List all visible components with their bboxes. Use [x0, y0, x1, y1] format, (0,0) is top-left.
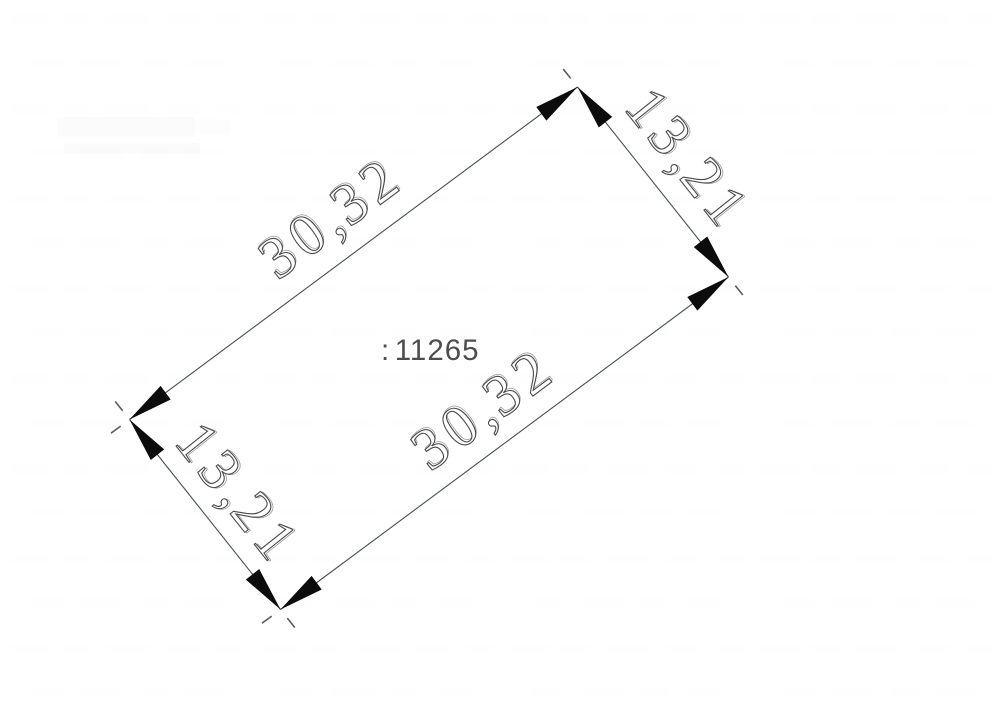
svg-text::11265: :11265 — [381, 334, 480, 367]
